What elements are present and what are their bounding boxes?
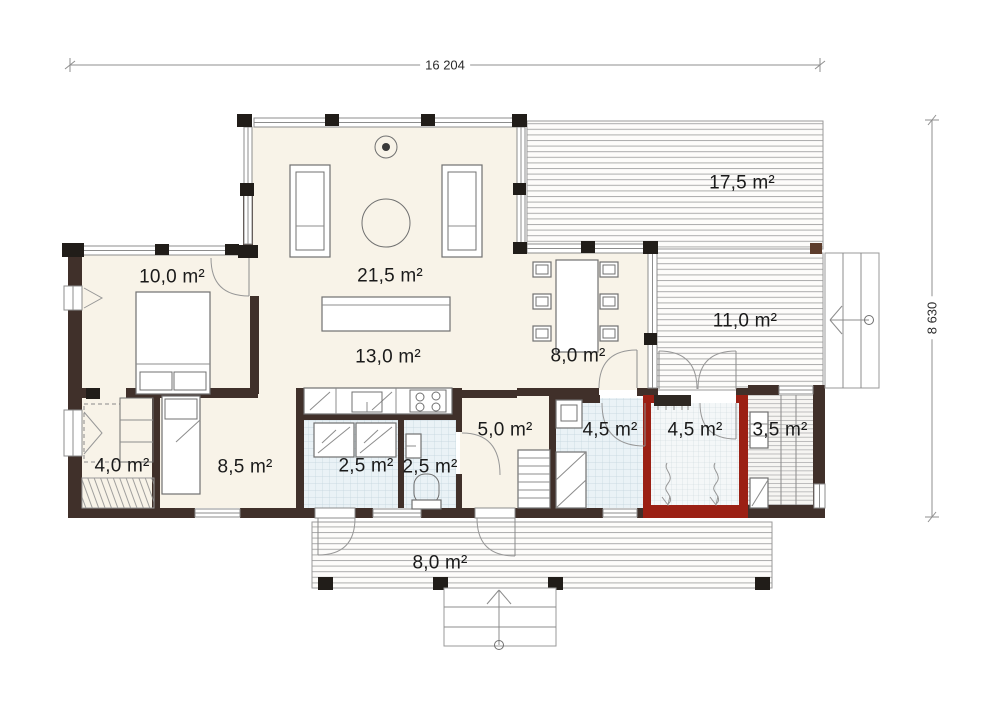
room-label-walk-in-closet: 4,0 m²: [94, 457, 149, 476]
room-label-bedroom-second: 8,5 m²: [217, 458, 272, 477]
double-bed: [136, 292, 210, 394]
room-label-dressing: 3,5 m²: [752, 421, 807, 440]
room-label-terrace-side: 11,0 m²: [713, 312, 777, 331]
kitchen-island: [322, 297, 450, 331]
dining-table: [556, 260, 598, 352]
kitchen-counter: [304, 388, 452, 414]
sofa-right: [442, 165, 482, 257]
room-label-terrace-top: 17,5 m²: [709, 174, 775, 193]
dressing-bench: [750, 478, 768, 508]
floor-plan-canvas: 16 204 8 630 17,5 m² 10,0 m² 21,5 m² 11,…: [0, 0, 1000, 712]
room-label-kitchen: 13,0 m²: [355, 348, 421, 367]
dimension-height-label: 8 630: [925, 297, 940, 340]
room-label-bedroom-main: 10,0 m²: [139, 268, 205, 287]
wc-sink: [406, 434, 421, 458]
deck-terrace-top: [527, 121, 823, 249]
bath-cabinet: [556, 452, 586, 508]
hall-wardrobe: [518, 450, 550, 508]
single-bed: [162, 396, 200, 494]
deck-porch: [312, 522, 772, 588]
room-label-hallway: 5,0 m²: [477, 421, 532, 440]
room-label-bathroom: 4,5 m²: [582, 421, 637, 440]
floor-plan-drawing: [0, 0, 1000, 712]
room-label-sauna: 4,5 m²: [667, 421, 722, 440]
sofa-left: [290, 165, 330, 257]
entry-mat-hatch: [82, 478, 154, 508]
room-label-dining: 8,0 m²: [550, 347, 605, 366]
room-label-utility: 2,5 m²: [338, 457, 393, 476]
room-label-living-room: 21,5 m²: [357, 267, 423, 286]
bath-sink: [556, 400, 582, 428]
room-label-wc: 2,5 m²: [402, 458, 457, 477]
side-stairs: [825, 253, 879, 388]
washer: [314, 423, 354, 457]
dimension-width-label: 16 204: [420, 58, 470, 73]
dryer: [356, 423, 396, 457]
room-label-porch: 8,0 m²: [412, 554, 467, 573]
entry-stairs: [444, 588, 556, 650]
